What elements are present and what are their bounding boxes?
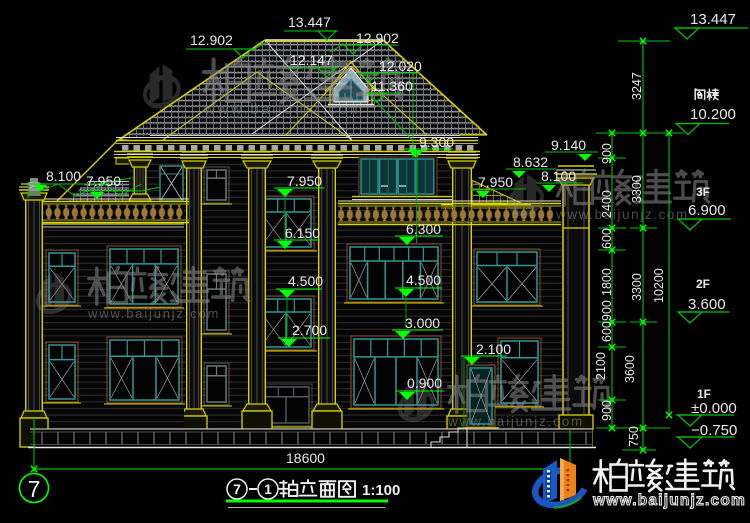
svg-text:www.baijunjz.com: www.baijunjz.com [203,101,365,118]
svg-text:12.902: 12.902 [356,30,399,46]
svg-text:900: 900 [600,143,614,164]
svg-text:3600: 3600 [623,355,637,383]
svg-text:www.baijunjz.com: www.baijunjz.com [87,306,220,321]
svg-text:12.020: 12.020 [379,58,422,74]
svg-text:900: 900 [600,300,614,321]
svg-text:8.100: 8.100 [541,168,576,184]
svg-text:2.100: 2.100 [476,341,511,357]
svg-text:1: 1 [264,481,272,497]
svg-text:750: 750 [627,426,641,447]
svg-text:7.950: 7.950 [478,174,513,190]
svg-text:3.000: 3.000 [405,315,440,331]
svg-text:7: 7 [28,476,41,502]
svg-text:9.300: 9.300 [419,134,454,150]
svg-text:11.360: 11.360 [371,78,413,94]
svg-text:9.140: 9.140 [551,137,586,153]
svg-text:2F: 2F [696,277,710,291]
svg-text:7.950: 7.950 [86,173,121,189]
svg-text:6.900: 6.900 [688,202,726,219]
svg-text:www.baijunjz.com: www.baijunjz.com [592,492,746,509]
svg-text:13.447: 13.447 [288,14,331,30]
svg-text:6.300: 6.300 [406,221,441,237]
svg-text:18600: 18600 [286,450,325,466]
svg-text:7.950: 7.950 [287,173,322,189]
svg-text:1F: 1F [697,387,711,401]
svg-text:3F: 3F [696,185,710,199]
svg-text:12.902: 12.902 [190,32,233,48]
svg-text:2.700: 2.700 [292,322,327,338]
svg-text:1800: 1800 [600,268,614,296]
svg-text:6.150: 6.150 [285,225,320,241]
svg-text:10200: 10200 [652,268,666,303]
svg-text:2400: 2400 [600,190,614,218]
svg-text:7: 7 [233,481,241,497]
svg-text:10.200: 10.200 [690,106,736,123]
svg-text:13.447: 13.447 [690,11,736,28]
svg-text:2100: 2100 [594,352,608,380]
svg-text:4.500: 4.500 [406,272,441,288]
svg-text:1:100: 1:100 [362,482,400,499]
svg-text:900: 900 [600,400,614,421]
svg-text:3300: 3300 [630,273,644,301]
svg-text:0.900: 0.900 [407,375,442,391]
svg-text:600: 600 [600,321,614,342]
svg-text:3247: 3247 [630,72,644,100]
svg-text:600: 600 [600,228,614,249]
svg-text:3.600: 3.600 [688,296,726,313]
svg-text:3300: 3300 [630,175,644,203]
svg-text:8.100: 8.100 [46,168,81,184]
svg-text:12.147: 12.147 [290,52,333,68]
svg-text:www.baijunjz.com: www.baijunjz.com [447,414,584,429]
svg-text:4.500: 4.500 [288,273,323,289]
